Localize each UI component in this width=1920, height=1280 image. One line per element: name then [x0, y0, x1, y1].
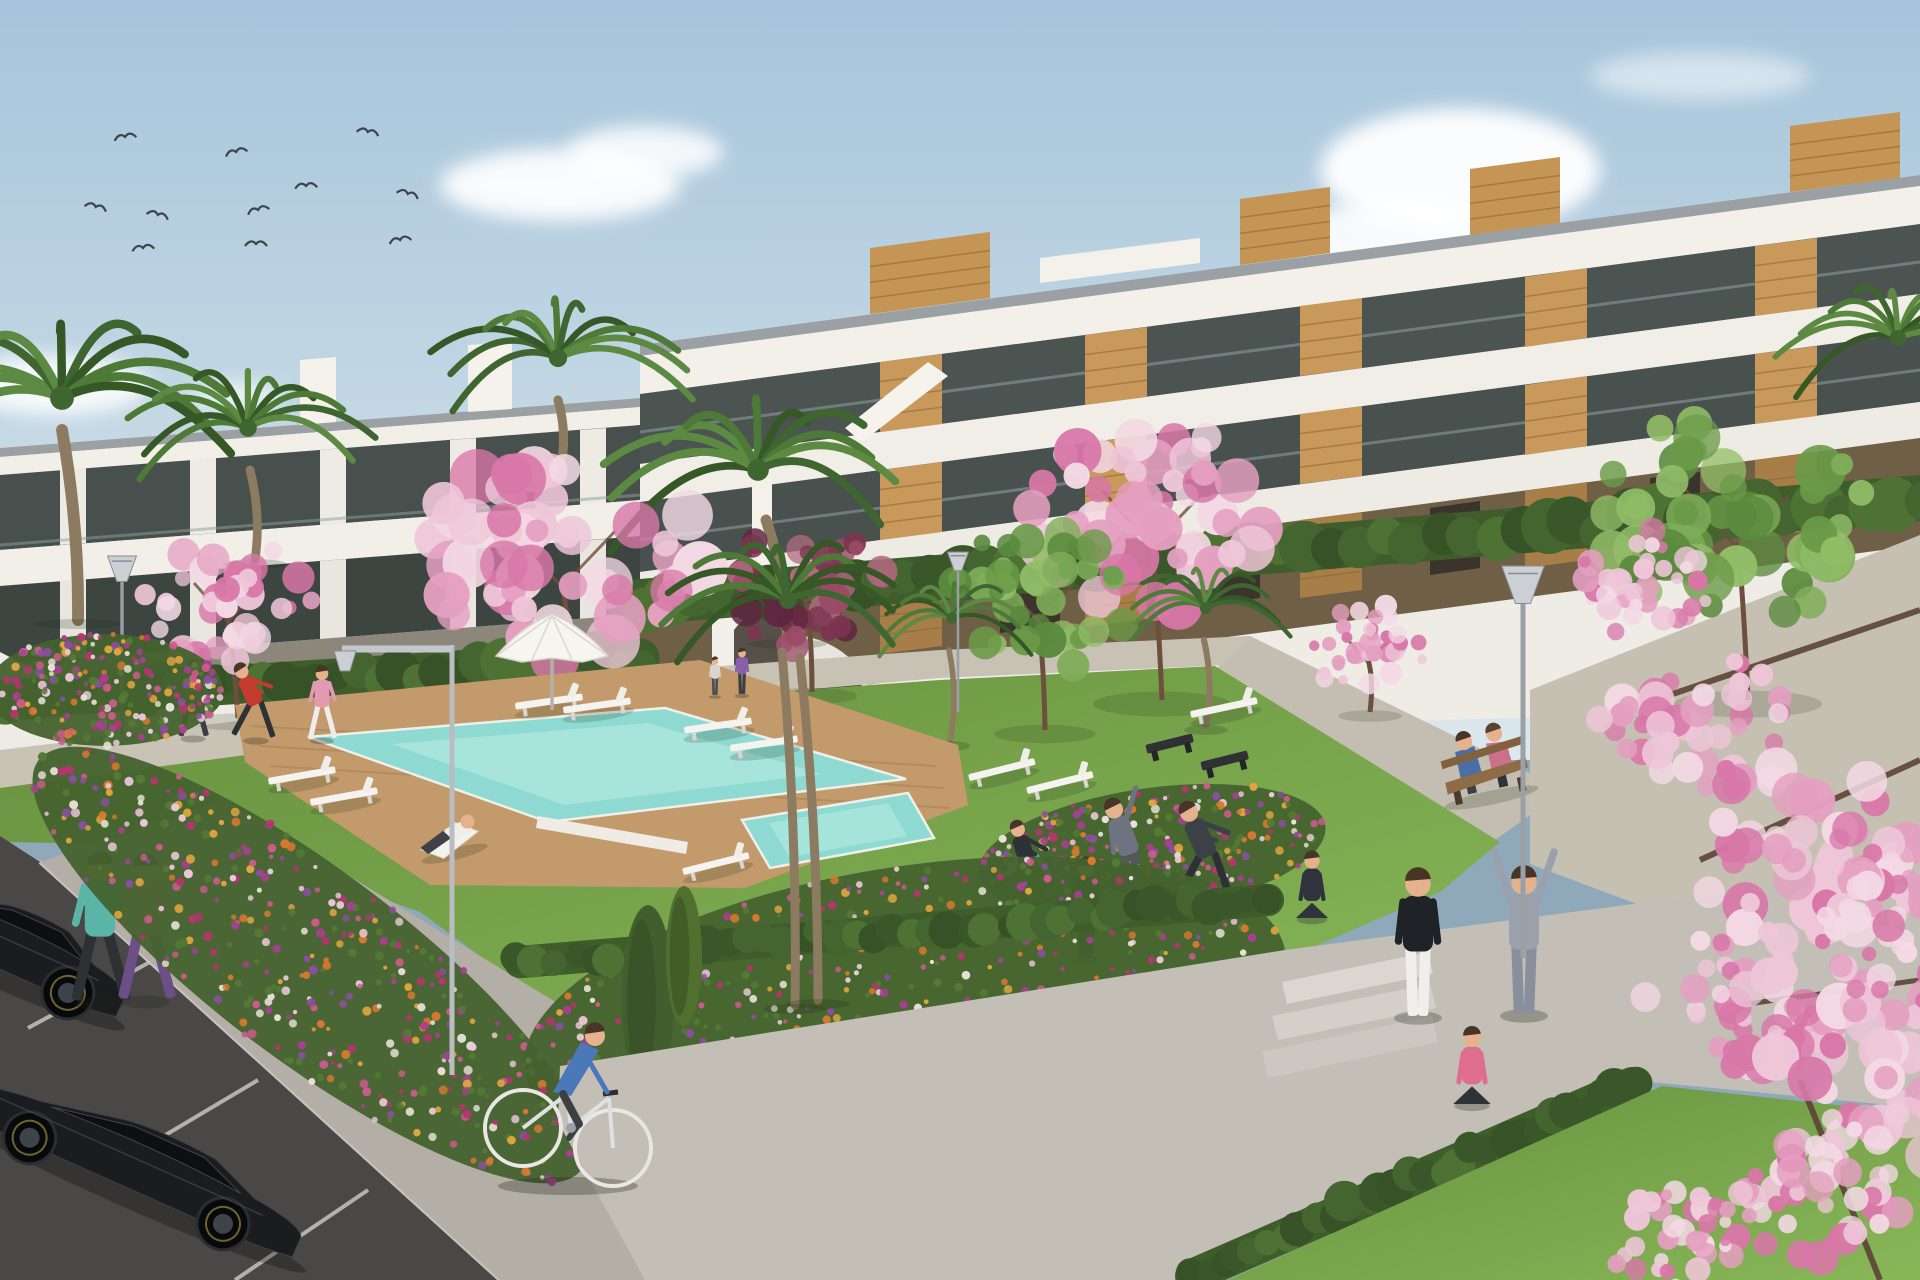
wood-23: [1085, 327, 1147, 405]
cloud-9: [1590, 52, 1810, 100]
wood-25: [1525, 268, 1587, 347]
roof-box: [1240, 187, 1330, 265]
poly-53: [320, 448, 346, 525]
roof-box: [1790, 112, 1900, 192]
wood-29: [1300, 406, 1362, 484]
wood-24: [1300, 298, 1362, 376]
roof-box: [1470, 157, 1560, 235]
cloud-2: [567, 126, 723, 178]
poly-61: [320, 559, 346, 641]
render-canvas: [0, 0, 1920, 1280]
cypress-150: [666, 886, 702, 1026]
poly-52: [190, 458, 216, 535]
wood-30: [1525, 376, 1587, 455]
architectural-render: [0, 0, 1920, 1280]
wood-26: [1755, 238, 1817, 316]
